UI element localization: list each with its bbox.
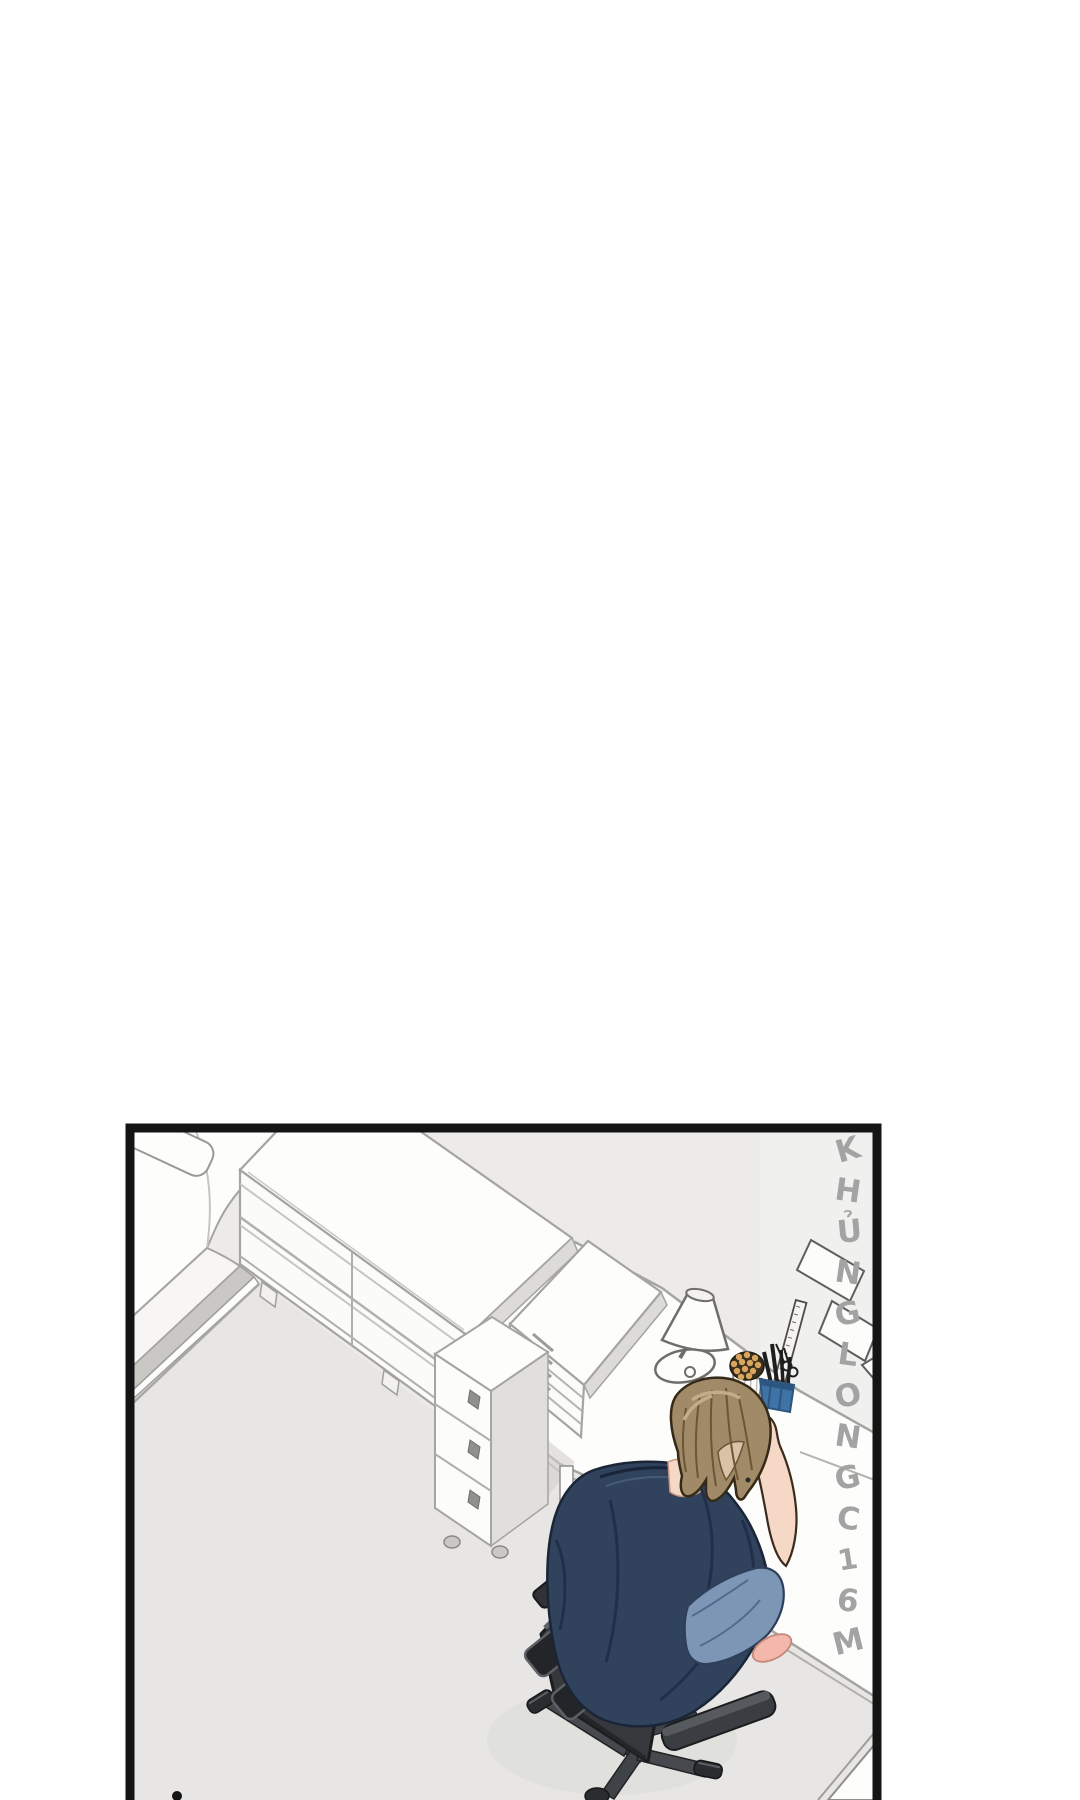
pedestal-caster [492,1546,508,1558]
webtoon-page: K H Ủ N G L O N G C 1 6 M [0,0,1080,1800]
hair [671,1378,771,1501]
chair-caster [585,1788,609,1800]
comic-panel-scene [0,0,1080,1800]
earring [746,1478,751,1483]
pedestal-caster [444,1536,460,1548]
lamp-switch [685,1367,695,1377]
